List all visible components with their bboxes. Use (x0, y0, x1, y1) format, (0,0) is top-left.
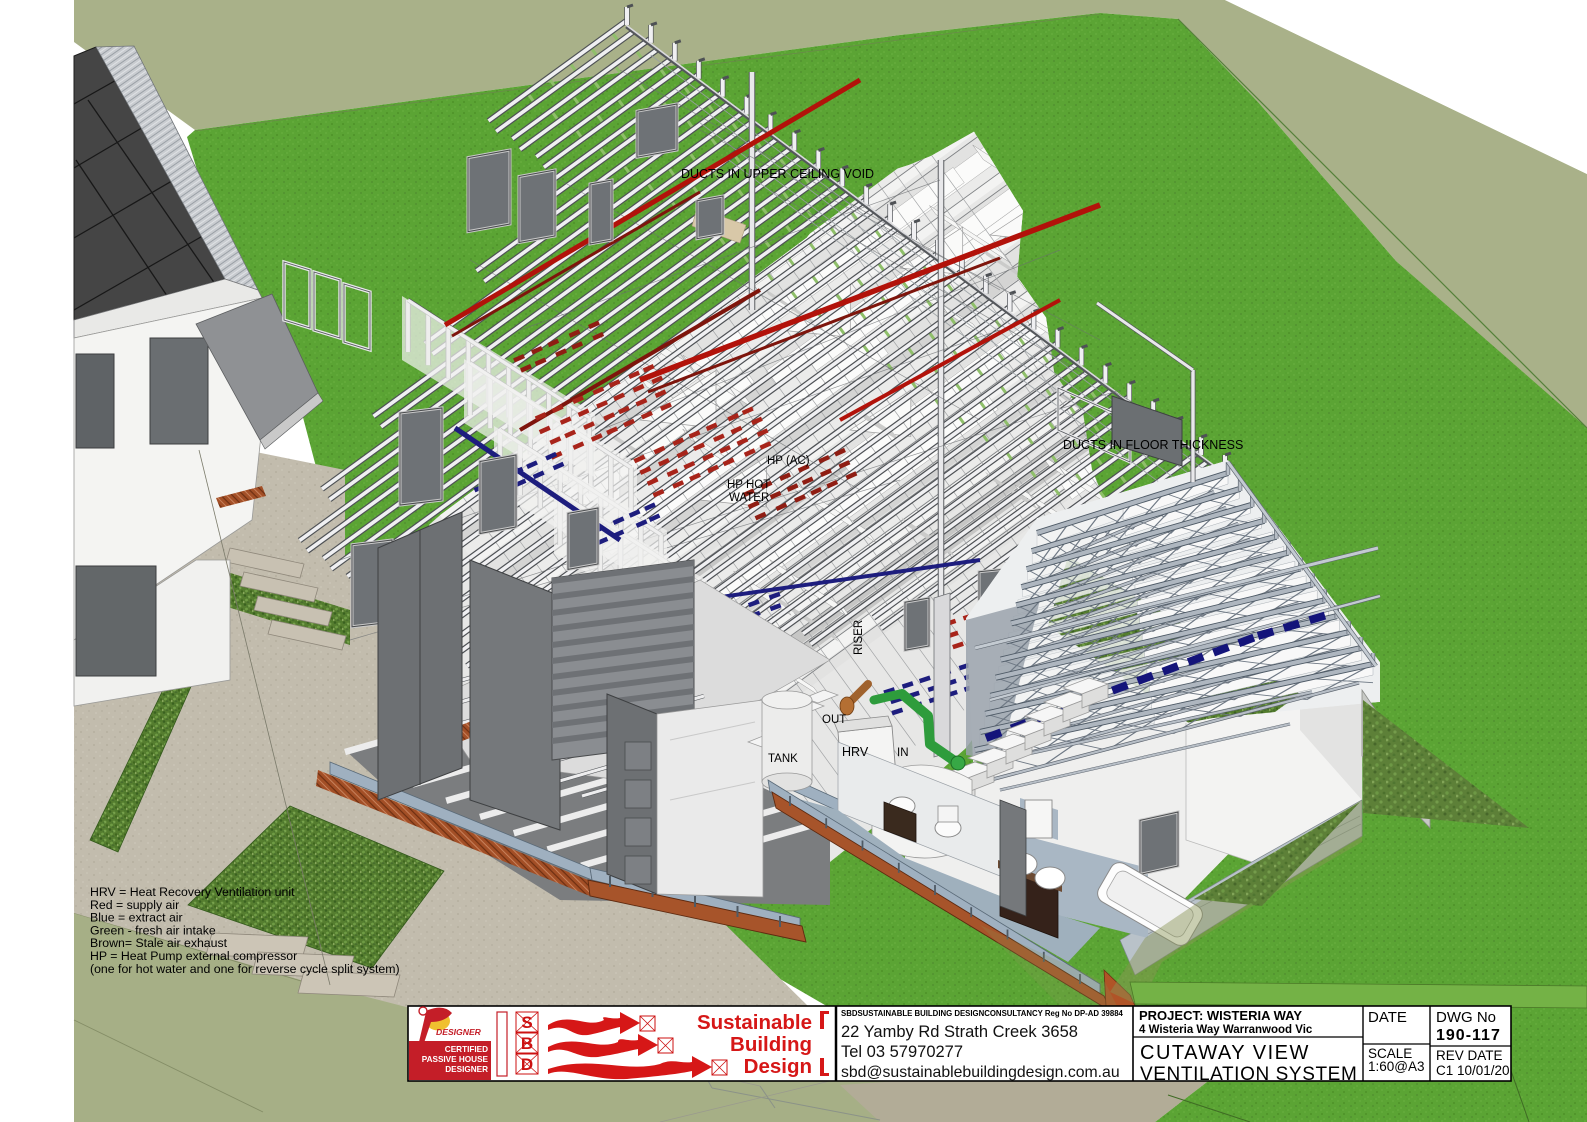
svg-text:HP (AC): HP (AC) (767, 455, 810, 467)
svg-text:DUCTS IN FLOOR THICKNESS: DUCTS IN FLOOR THICKNESS (1063, 438, 1243, 452)
svg-text:HP HOT: HP HOT (727, 479, 770, 491)
svg-text:DESIGNER: DESIGNER (445, 1065, 488, 1074)
svg-text:WATER: WATER (729, 492, 769, 504)
svg-text:SBDSUSTAINABLE BUILDING DESIGN: SBDSUSTAINABLE BUILDING DESIGNCONSULTANC… (841, 1009, 1124, 1018)
svg-text:sbd@sustainablebuildingdesign.: sbd@sustainablebuildingdesign.com.au (841, 1064, 1120, 1081)
svg-text:RISER: RISER (853, 620, 865, 655)
svg-text:PASSIVE HOUSE: PASSIVE HOUSE (422, 1055, 489, 1064)
svg-text:OUT: OUT (822, 714, 846, 726)
svg-text:DWG No: DWG No (1436, 1009, 1496, 1026)
svg-text:Design: Design (744, 1055, 812, 1078)
svg-text:Sustainable: Sustainable (697, 1011, 812, 1034)
svg-text:1:60@A3: 1:60@A3 (1368, 1059, 1425, 1074)
svg-text:REV DATE: REV DATE (1436, 1048, 1503, 1063)
svg-text:PROJECT: WISTERIA WAY: PROJECT: WISTERIA WAY (1139, 1008, 1302, 1023)
svg-text:DATE: DATE (1368, 1009, 1407, 1026)
svg-text:TANK: TANK (768, 753, 798, 765)
svg-text:S: S (521, 1013, 532, 1032)
svg-text:Tel 03 57970277: Tel 03 57970277 (841, 1043, 963, 1061)
svg-text:DESIGNER: DESIGNER (436, 1027, 482, 1037)
svg-text:4 Wisteria Way Warranwood Vic: 4 Wisteria Way Warranwood Vic (1139, 1024, 1313, 1036)
svg-text:B: B (521, 1034, 533, 1053)
svg-text:IN: IN (897, 747, 909, 759)
svg-text:C1 10/01/20: C1 10/01/20 (1436, 1063, 1510, 1078)
svg-text:D: D (521, 1055, 533, 1074)
svg-text:CERTIFIED: CERTIFIED (445, 1045, 488, 1054)
svg-text:DUCTS IN UPPER CEILING VOID: DUCTS IN UPPER CEILING VOID (681, 167, 874, 181)
svg-text:CUTAWAY VIEW: CUTAWAY VIEW (1140, 1042, 1310, 1064)
svg-text:VENTILATION SYSTEM: VENTILATION SYSTEM (1140, 1064, 1357, 1085)
svg-text:Building: Building (730, 1033, 812, 1056)
svg-text:190-117: 190-117 (1436, 1027, 1501, 1044)
svg-text:22 Yamby Rd Strath Creek 3658: 22 Yamby Rd Strath Creek 3658 (841, 1023, 1078, 1041)
svg-text:(one for hot water and one for: (one for hot water and one for reverse c… (90, 962, 400, 976)
svg-text:HRV: HRV (842, 745, 869, 759)
